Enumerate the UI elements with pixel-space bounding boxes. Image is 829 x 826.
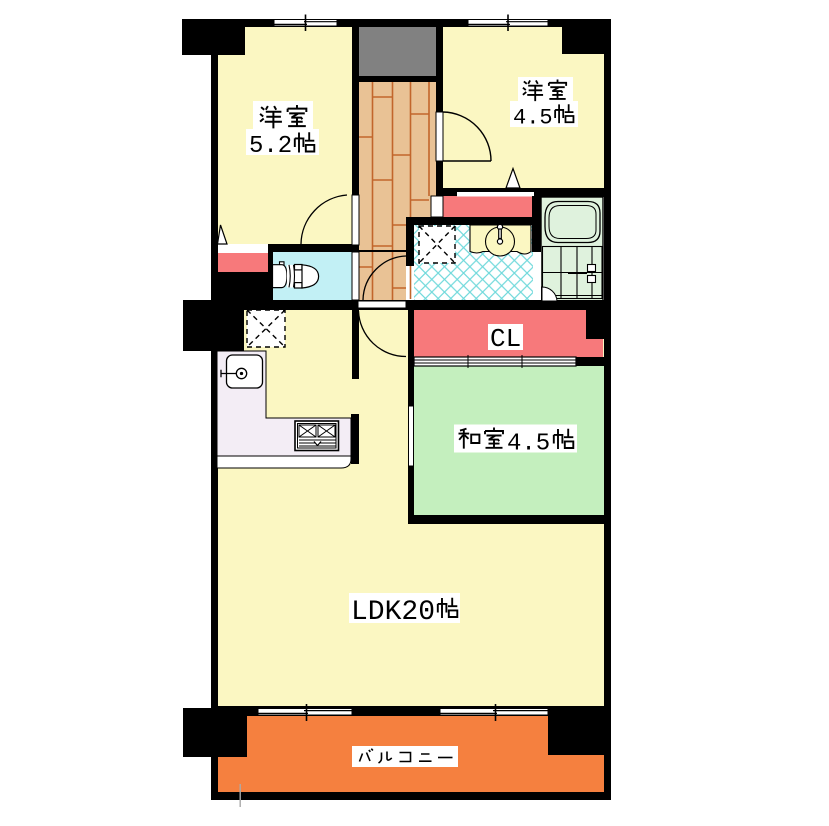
svg-text:4.5: 4.5 bbox=[507, 431, 550, 458]
svg-text:4.5: 4.5 bbox=[513, 106, 553, 131]
svg-text:5.2: 5.2 bbox=[249, 133, 292, 160]
svg-text:LDK20: LDK20 bbox=[351, 597, 435, 628]
svg-text:CL: CL bbox=[490, 324, 521, 354]
